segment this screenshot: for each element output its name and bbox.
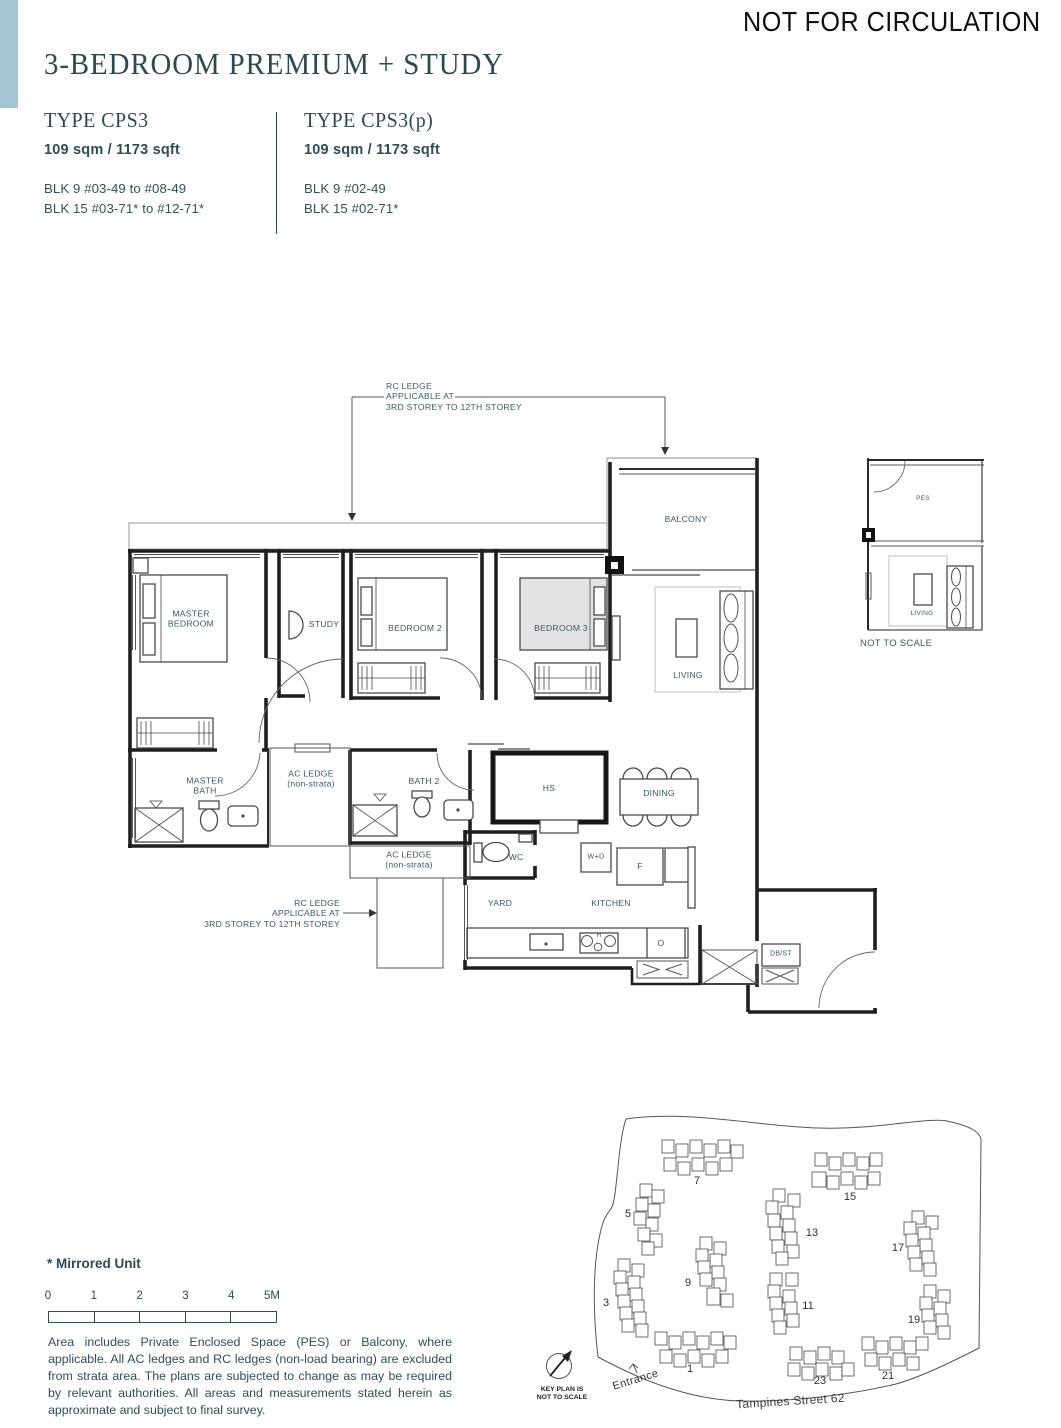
keyplan-block bbox=[922, 1309, 934, 1322]
entrance-arrow bbox=[629, 1364, 638, 1373]
keyplan-highlighted-unit bbox=[812, 1172, 826, 1187]
keyplan-block bbox=[904, 1341, 916, 1354]
keyplan-block bbox=[876, 1341, 888, 1354]
keyplan-block bbox=[920, 1297, 932, 1310]
keyplan-block bbox=[768, 1285, 780, 1298]
keyplan-block bbox=[636, 1324, 648, 1337]
keyplan-block bbox=[721, 1294, 733, 1307]
floorplan-page: NOT FOR CIRCULATION 3-BEDROOM PREMIUM + … bbox=[0, 0, 1061, 1428]
keyplan-block bbox=[924, 1321, 936, 1334]
keyplan-block bbox=[855, 1176, 867, 1189]
keyplan-block bbox=[815, 1153, 827, 1166]
db-st-cabinet bbox=[762, 944, 800, 966]
keyplan-block bbox=[718, 1140, 730, 1153]
keyplan-block bbox=[642, 1242, 654, 1255]
study-desk bbox=[289, 611, 303, 639]
tv-console bbox=[612, 616, 620, 660]
sofa bbox=[720, 591, 753, 689]
keyplan-block bbox=[790, 1347, 802, 1360]
coffee-table bbox=[676, 619, 697, 657]
keyplan-block bbox=[678, 1162, 690, 1175]
keyplan-block bbox=[662, 1140, 674, 1153]
keyplan-block bbox=[652, 1190, 664, 1203]
keyplan-block bbox=[786, 1273, 798, 1286]
keyplan-block bbox=[618, 1259, 630, 1272]
keyplan-block bbox=[862, 1337, 874, 1350]
keyplan-block bbox=[683, 1332, 695, 1345]
keyplan-block bbox=[772, 1240, 784, 1253]
keyplan-block bbox=[622, 1319, 634, 1332]
keyplan-block bbox=[634, 1212, 646, 1225]
floorplan-graphics bbox=[0, 0, 1061, 1428]
keyplan-block bbox=[770, 1273, 782, 1286]
keyplan-block bbox=[772, 1309, 784, 1322]
keyplan-blocks bbox=[614, 1140, 950, 1380]
keyplan-block bbox=[704, 1144, 716, 1157]
keyplan-block bbox=[830, 1367, 842, 1380]
keyplan-block bbox=[697, 1336, 709, 1349]
keyplan-block bbox=[770, 1297, 782, 1310]
keyplan-block bbox=[716, 1350, 728, 1363]
walls bbox=[128, 458, 877, 1012]
keyplan-block bbox=[802, 1367, 814, 1380]
keyplan-block bbox=[614, 1271, 626, 1284]
keyplan-block bbox=[910, 1258, 922, 1271]
keyplan-block bbox=[924, 1285, 936, 1298]
keyplan-block bbox=[770, 1227, 782, 1240]
keyplan-block bbox=[674, 1354, 686, 1367]
keyplan-block bbox=[700, 1273, 712, 1286]
keyplan-block bbox=[664, 1158, 676, 1171]
keyplan-block bbox=[630, 1288, 642, 1301]
keyplan-block bbox=[841, 1172, 853, 1185]
key-plan bbox=[547, 1116, 982, 1401]
hs-door-step bbox=[540, 820, 578, 833]
keyplan-block bbox=[785, 1232, 797, 1245]
keyplan-block bbox=[655, 1332, 667, 1345]
keyplan-block bbox=[788, 1363, 800, 1376]
keyplan-block bbox=[706, 1162, 718, 1175]
rc-ledge-bands bbox=[129, 458, 757, 551]
keyplan-block bbox=[816, 1363, 828, 1376]
keyplan-block bbox=[711, 1332, 723, 1345]
keyplan-block bbox=[712, 1266, 724, 1279]
keyplan-block bbox=[688, 1350, 700, 1363]
keyplan-block bbox=[865, 1353, 877, 1366]
mirrored-unit-note: * Mirrored Unit bbox=[47, 1256, 141, 1271]
compass-icon bbox=[547, 1350, 573, 1379]
keyplan-block bbox=[920, 1239, 932, 1252]
keyplan-block bbox=[783, 1290, 795, 1303]
keyplan-block bbox=[818, 1347, 830, 1360]
keyplan-block bbox=[916, 1337, 928, 1350]
scale-tick-3: 3 bbox=[182, 1290, 188, 1302]
scale-bar: 012345M bbox=[48, 1290, 277, 1324]
keyplan-block bbox=[938, 1326, 950, 1339]
keyplan-block bbox=[907, 1357, 919, 1370]
keyplan-block bbox=[783, 1219, 795, 1232]
keyplan-block bbox=[669, 1336, 681, 1349]
keyplan-block bbox=[922, 1251, 934, 1264]
keyplan-block bbox=[766, 1201, 778, 1214]
keyplan-block bbox=[628, 1276, 640, 1289]
keyplan-block bbox=[906, 1234, 918, 1247]
keyplan-block bbox=[724, 1336, 736, 1349]
keyplan-block bbox=[660, 1350, 672, 1363]
scale-tick-4: 4 bbox=[228, 1290, 234, 1302]
keyplan-block bbox=[781, 1206, 793, 1219]
keyplan-block bbox=[804, 1351, 816, 1364]
keyplan-block bbox=[632, 1264, 644, 1277]
keyplan-block bbox=[776, 1252, 788, 1265]
keyplan-block bbox=[936, 1314, 948, 1327]
keyplan-block bbox=[696, 1249, 708, 1262]
keyplan-block bbox=[702, 1354, 714, 1367]
keyplan-block bbox=[690, 1140, 702, 1153]
keyplan-block bbox=[638, 1228, 650, 1241]
keyplan-block bbox=[787, 1245, 799, 1258]
keyplan-block bbox=[720, 1158, 732, 1171]
mini-plan bbox=[862, 458, 984, 630]
keyplan-block bbox=[710, 1254, 722, 1267]
scale-tick-0: 0 bbox=[45, 1290, 51, 1302]
keyplan-block bbox=[676, 1144, 688, 1157]
keyplan-block bbox=[893, 1353, 905, 1366]
keyplan-block bbox=[700, 1237, 712, 1250]
keyplan-block bbox=[648, 1204, 660, 1217]
keyplan-block bbox=[879, 1357, 891, 1370]
keyplan-highlighted-unit bbox=[707, 1288, 720, 1305]
keyplan-block bbox=[787, 1314, 799, 1327]
keyplan-block bbox=[843, 1153, 855, 1166]
keyplan-block bbox=[857, 1157, 869, 1170]
keyplan-block bbox=[714, 1242, 726, 1255]
keyplan-block bbox=[620, 1307, 632, 1320]
dining-set bbox=[620, 768, 698, 826]
keyplan-block bbox=[773, 1189, 785, 1202]
keyplan-block bbox=[640, 1184, 652, 1197]
keyplan-block bbox=[938, 1290, 950, 1303]
keyplan-block bbox=[842, 1363, 854, 1376]
keyplan-block bbox=[829, 1157, 841, 1170]
keyplan-block bbox=[634, 1312, 646, 1325]
keyplan-block bbox=[698, 1261, 710, 1274]
disclaimer-text: Area includes Private Enclosed Space (PE… bbox=[48, 1334, 452, 1419]
scale-tick-1: 1 bbox=[91, 1290, 97, 1302]
keyplan-block bbox=[616, 1283, 628, 1296]
keyplan-block bbox=[788, 1194, 800, 1207]
keyplan-block bbox=[832, 1351, 844, 1364]
keyplan-block bbox=[636, 1198, 648, 1211]
keyplan-block bbox=[785, 1302, 797, 1315]
fridge bbox=[617, 848, 663, 885]
keyplan-block bbox=[918, 1227, 930, 1240]
furniture bbox=[133, 558, 753, 908]
keyplan-block bbox=[618, 1295, 630, 1308]
keyplan-block bbox=[904, 1222, 916, 1235]
scale-bar-box bbox=[48, 1311, 277, 1323]
bath-fixtures bbox=[135, 791, 532, 862]
keyplan-block bbox=[692, 1158, 704, 1171]
washer-dryer bbox=[581, 843, 611, 872]
keyplan-block bbox=[632, 1300, 644, 1313]
keyplan-block bbox=[890, 1337, 902, 1350]
keyplan-block bbox=[768, 1214, 780, 1227]
keyplan-block bbox=[868, 1172, 880, 1185]
keyplan-block bbox=[924, 1263, 936, 1276]
keyplan-block bbox=[908, 1246, 920, 1259]
keyplan-block bbox=[731, 1145, 743, 1158]
kitchen-fixtures bbox=[467, 928, 800, 966]
scale-tick-2: 2 bbox=[136, 1290, 142, 1302]
keyplan-block bbox=[827, 1176, 839, 1189]
keyplan-block bbox=[870, 1153, 882, 1166]
keyplan-block bbox=[934, 1302, 946, 1315]
keyplan-block bbox=[774, 1321, 786, 1334]
scale-tick-5M: 5M bbox=[264, 1290, 280, 1302]
